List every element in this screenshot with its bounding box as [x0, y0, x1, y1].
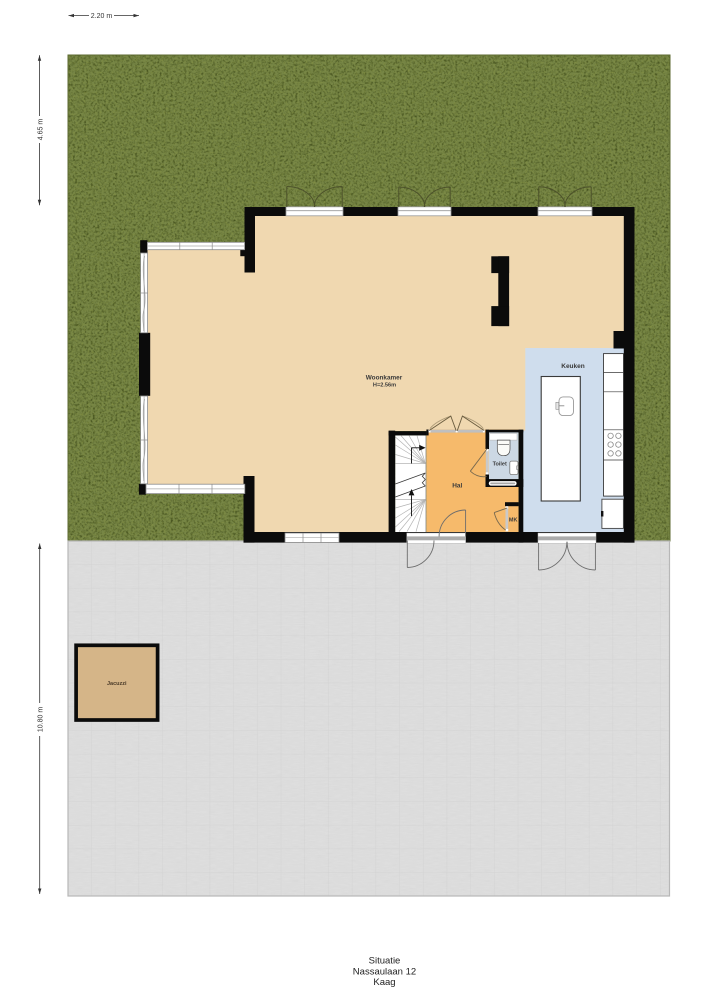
svg-text:10.80 m: 10.80 m [38, 707, 45, 732]
svg-text:Kaag: Kaag [373, 977, 395, 988]
svg-text:Woonkamer: Woonkamer [366, 375, 403, 382]
svg-text:Keuken: Keuken [561, 363, 585, 370]
svg-text:2.20 m: 2.20 m [91, 13, 113, 20]
svg-text:Toilet: Toilet [493, 461, 507, 467]
svg-text:Jacuzzi: Jacuzzi [107, 681, 127, 687]
svg-text:H=2.56m: H=2.56m [373, 383, 396, 389]
svg-text:Situatie: Situatie [369, 956, 401, 967]
svg-text:4.65 m: 4.65 m [37, 119, 44, 141]
svg-text:Hal: Hal [452, 483, 462, 490]
svg-text:Nassaulaan 12: Nassaulaan 12 [353, 966, 416, 977]
svg-text:MK: MK [509, 517, 518, 523]
